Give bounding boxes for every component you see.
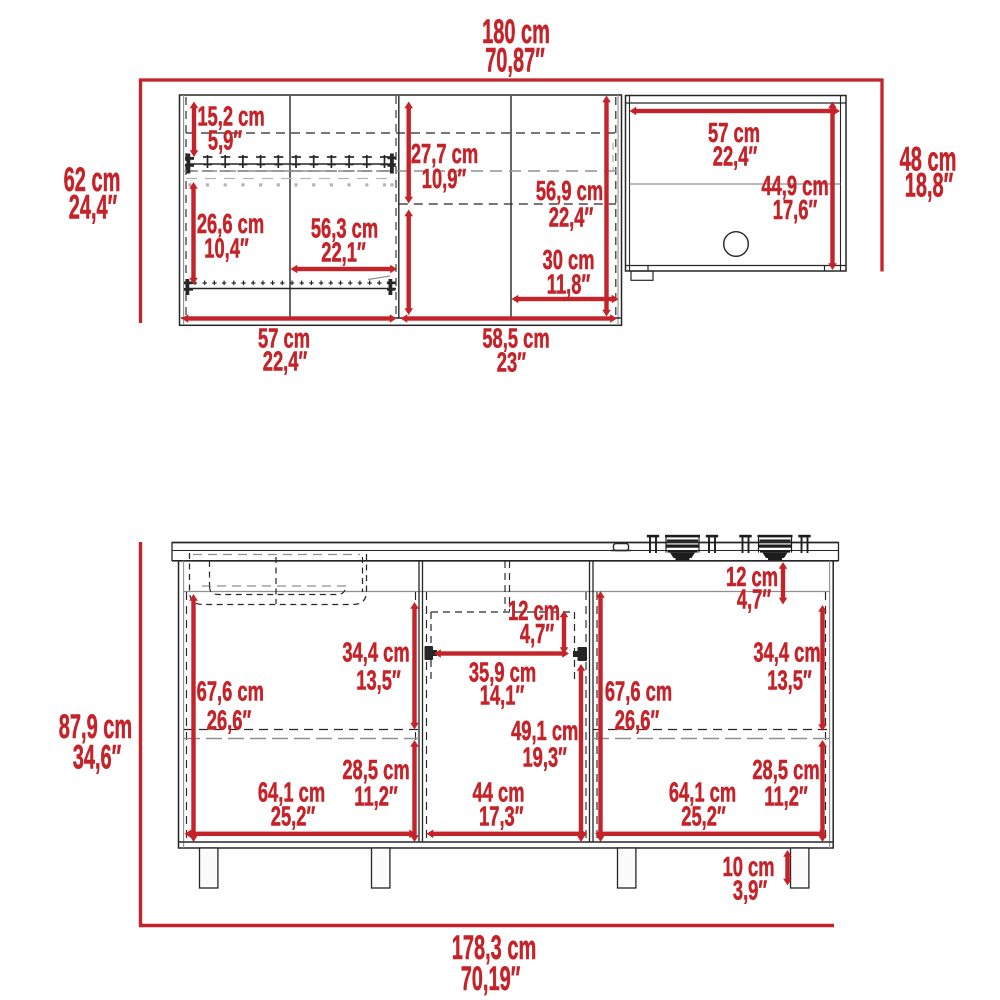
svg-text:22,4″: 22,4″	[549, 203, 593, 234]
svg-text:22,4″: 22,4″	[713, 142, 757, 173]
svg-text:67,6 cm: 67,6 cm	[605, 677, 672, 708]
svg-text:18,8″: 18,8″	[905, 165, 954, 204]
svg-text:34,6″: 34,6″	[73, 737, 122, 776]
svg-text:4,7″: 4,7″	[737, 585, 771, 616]
svg-text:25,2″: 25,2″	[681, 802, 725, 833]
svg-text:10,9″: 10,9″	[422, 165, 466, 196]
svg-text:13,5″: 13,5″	[356, 666, 400, 697]
svg-text:24,4″: 24,4″	[69, 187, 118, 226]
svg-text:4,7″: 4,7″	[520, 620, 554, 651]
svg-text:67,6 cm: 67,6 cm	[197, 677, 264, 708]
svg-text:17,6″: 17,6″	[773, 196, 817, 227]
svg-text:14,1″: 14,1″	[480, 681, 524, 712]
svg-text:5,9″: 5,9″	[208, 126, 242, 157]
svg-text:3,9″: 3,9″	[733, 876, 767, 907]
svg-text:26,6″: 26,6″	[207, 706, 251, 737]
svg-text:22,4″: 22,4″	[263, 347, 307, 378]
svg-text:70,19″: 70,19″	[461, 958, 521, 997]
svg-text:70,87″: 70,87″	[485, 40, 545, 79]
svg-text:25,2″: 25,2″	[271, 802, 315, 833]
svg-text:26,6″: 26,6″	[615, 706, 659, 737]
svg-text:11,2″: 11,2″	[764, 782, 807, 813]
svg-text:34,4 cm: 34,4 cm	[342, 638, 409, 669]
svg-text:13,5″: 13,5″	[767, 666, 811, 697]
svg-text:34,4 cm: 34,4 cm	[753, 638, 820, 669]
svg-text:10,4″: 10,4″	[204, 234, 248, 265]
svg-text:11,2″: 11,2″	[354, 782, 397, 813]
svg-text:17,3″: 17,3″	[479, 802, 523, 833]
svg-text:11,8″: 11,8″	[547, 270, 590, 301]
svg-text:22,1″: 22,1″	[321, 238, 365, 269]
svg-text:23″: 23″	[497, 348, 526, 379]
svg-text:19,3″: 19,3″	[522, 743, 566, 774]
